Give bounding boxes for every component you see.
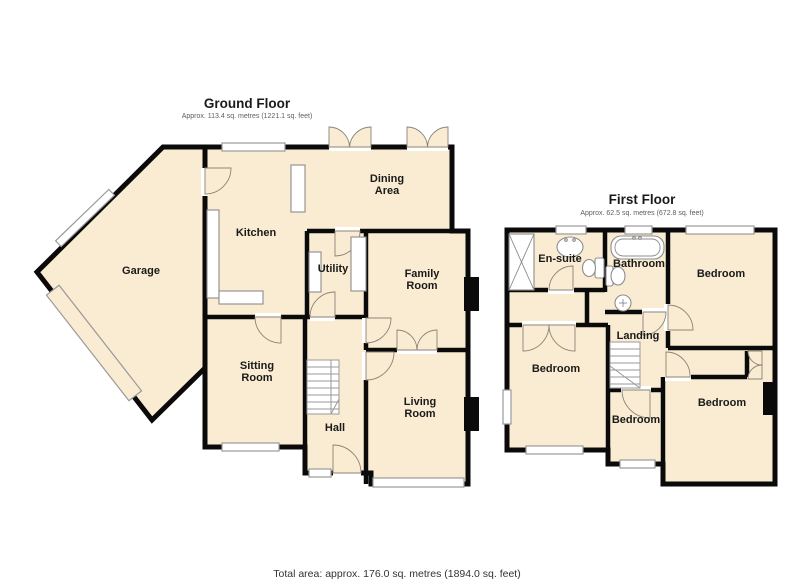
first-floor-stairs bbox=[610, 342, 640, 388]
first-floor-plan: First Floor Approx. 62.5 sq. metres (672… bbox=[503, 192, 776, 484]
room-label-garage: Garage bbox=[122, 265, 160, 277]
room-label-ensuite: En-suite bbox=[538, 253, 581, 265]
room-label-bedroom-bottom-right: Bedroom bbox=[698, 397, 747, 409]
ground-floor-plan: Ground Floor Approx. 113.4 sq. metres (1… bbox=[37, 96, 479, 487]
bedroom-chimney bbox=[763, 382, 776, 415]
shower-icon bbox=[509, 234, 534, 290]
room-label-sitting-1: Sitting bbox=[240, 360, 274, 372]
living-room-chimney bbox=[464, 397, 479, 431]
ground-floor-stairs bbox=[307, 360, 339, 414]
room-label-utility: Utility bbox=[318, 263, 349, 275]
room-label-kitchen: Kitchen bbox=[236, 227, 277, 239]
room-label-bedroom-left: Bedroom bbox=[532, 363, 581, 375]
room-label-living-2: Room bbox=[404, 408, 435, 420]
room-label-landing: Landing bbox=[617, 330, 660, 342]
first-floor-title: First Floor bbox=[609, 192, 676, 207]
floorplan-page: Ground Floor Approx. 113.4 sq. metres (1… bbox=[0, 0, 800, 582]
room-label-family-2: Room bbox=[406, 280, 437, 292]
room-label-hall: Hall bbox=[325, 422, 345, 434]
bathtub-icon bbox=[611, 236, 664, 259]
ground-floor-title: Ground Floor bbox=[204, 96, 291, 111]
total-area-text: Total area: approx. 176.0 sq. metres (18… bbox=[273, 568, 520, 580]
ground-floor-area: Approx. 113.4 sq. metres (1221.1 sq. fee… bbox=[182, 113, 313, 120]
radiator-icon bbox=[615, 295, 631, 311]
room-label-dining-1: Dining bbox=[370, 173, 404, 185]
floorplan-canvas: Ground Floor Approx. 113.4 sq. metres (1… bbox=[0, 0, 800, 582]
family-room-chimney bbox=[464, 277, 479, 311]
room-label-bedroom-top-right: Bedroom bbox=[697, 268, 746, 280]
room-label-bedroom-middle: Bedroom bbox=[612, 414, 661, 426]
room-label-dining-2: Area bbox=[375, 185, 400, 197]
room-label-family-1: Family bbox=[405, 268, 441, 280]
room-label-bathroom: Bathroom bbox=[613, 258, 665, 270]
ensuite-toilet-icon bbox=[583, 258, 605, 278]
room-label-sitting-2: Room bbox=[241, 372, 272, 384]
first-floor-area: Approx. 62.5 sq. metres (672.8 sq. feet) bbox=[580, 210, 703, 217]
room-label-living-1: Living bbox=[404, 396, 436, 408]
